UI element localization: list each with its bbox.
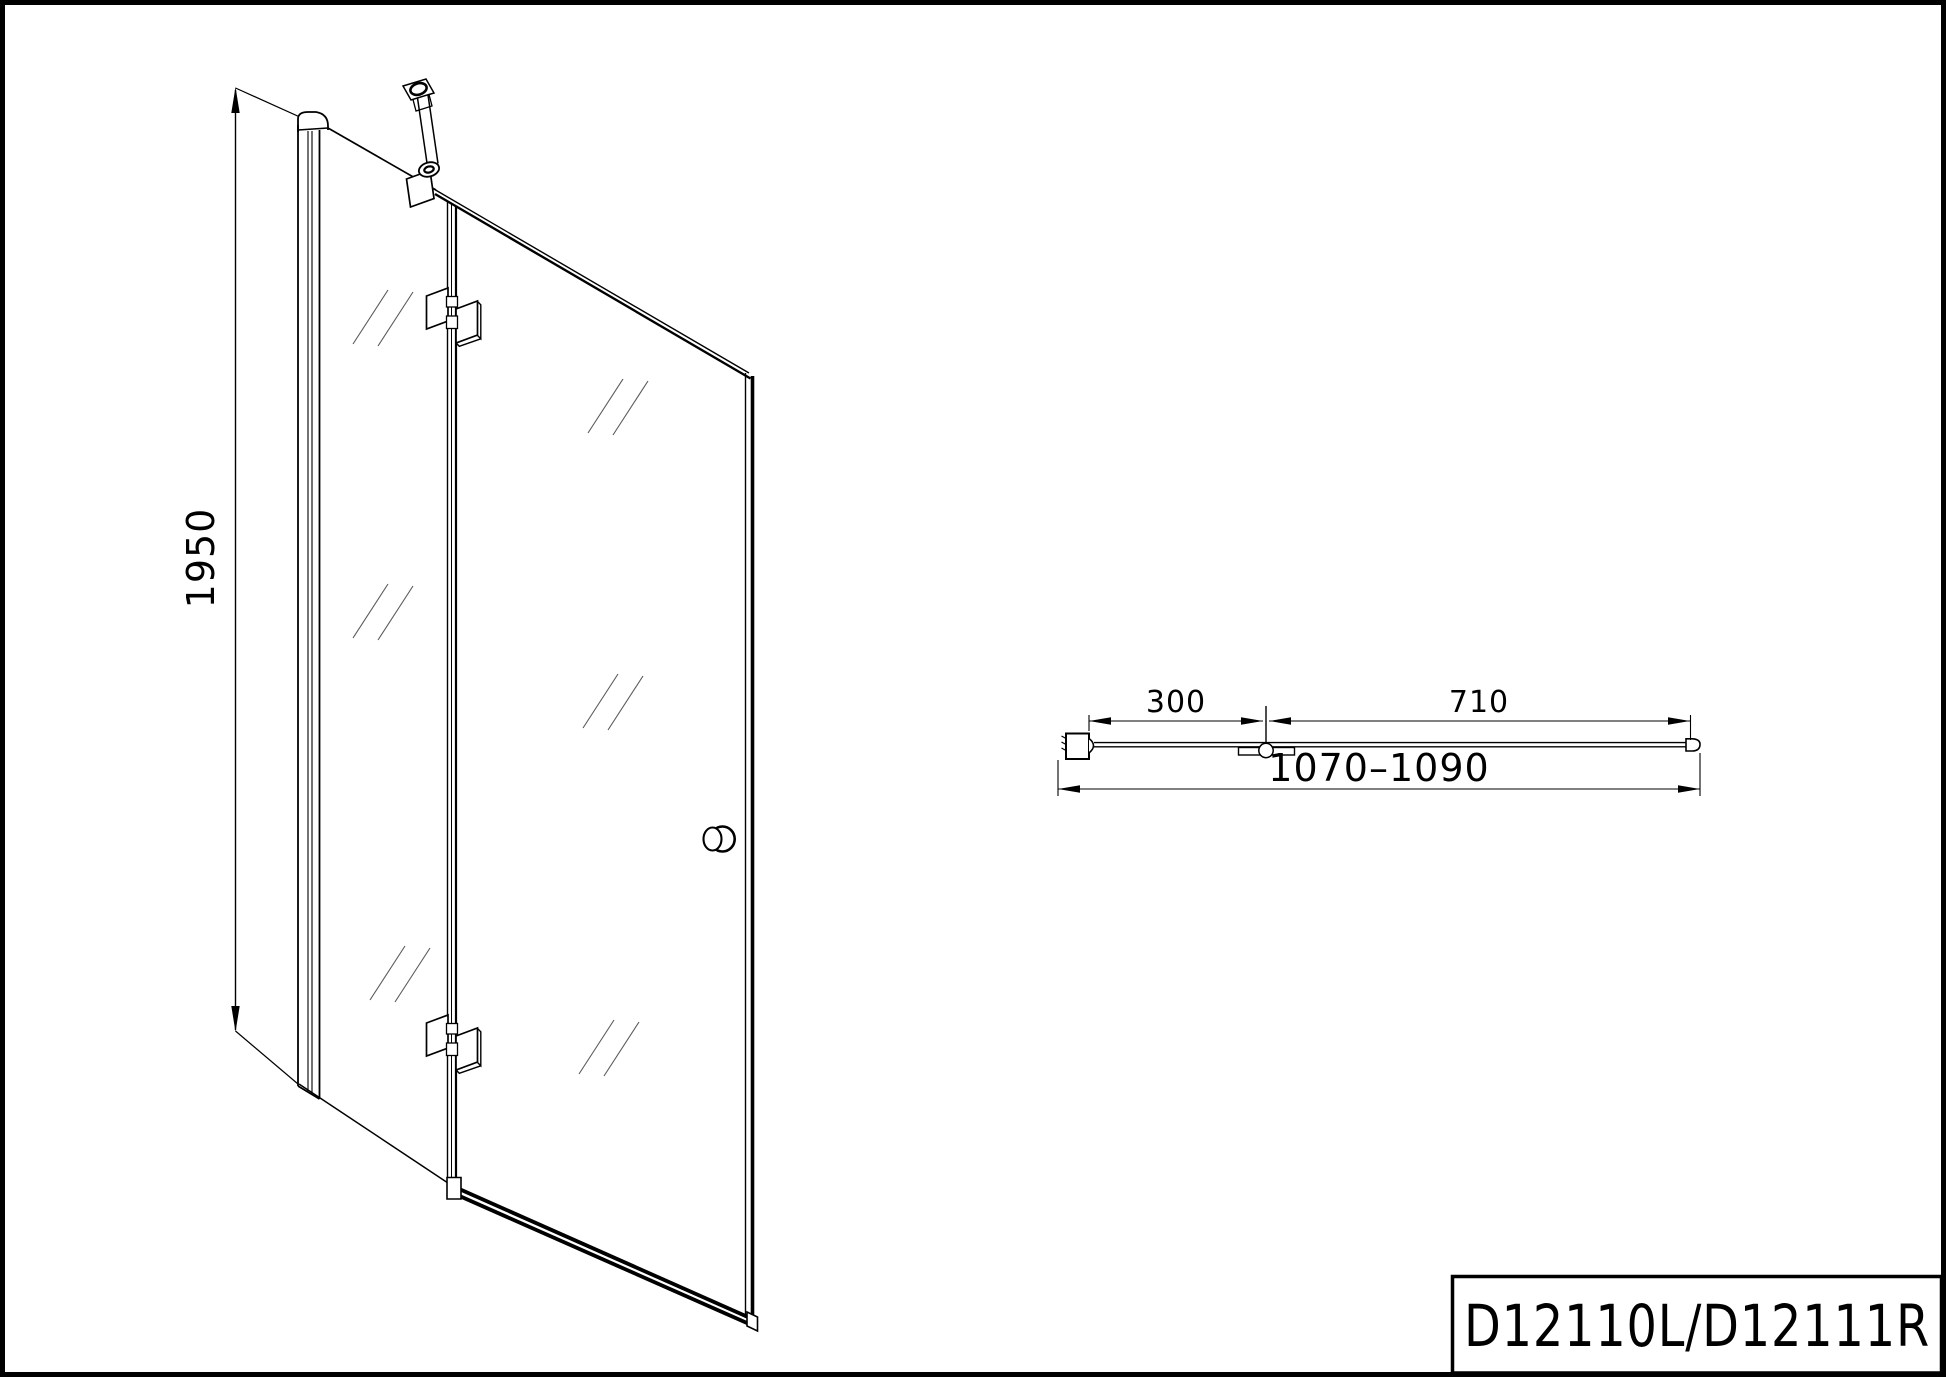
dimension-300-label: 300 — [1146, 685, 1206, 720]
model-number: D12110L/D12111R — [1464, 1292, 1930, 1360]
height-dimension-label: 1950 — [179, 508, 223, 609]
door-knob — [704, 827, 735, 852]
technical-drawing-canvas: 1950 — [0, 0, 1946, 1377]
drawing-page: 1950 — [0, 0, 1946, 1377]
rail-end-cap-left — [447, 1178, 461, 1200]
plan-end-cap — [1686, 739, 1700, 751]
dimension-710-label: 710 — [1449, 685, 1509, 720]
plan-wall-profile — [1062, 734, 1094, 760]
page-background — [0, 0, 1946, 1377]
title-block: D12110L/D12111R — [1453, 1277, 1942, 1374]
dimension-total-label: 1070–1090 — [1268, 746, 1489, 790]
